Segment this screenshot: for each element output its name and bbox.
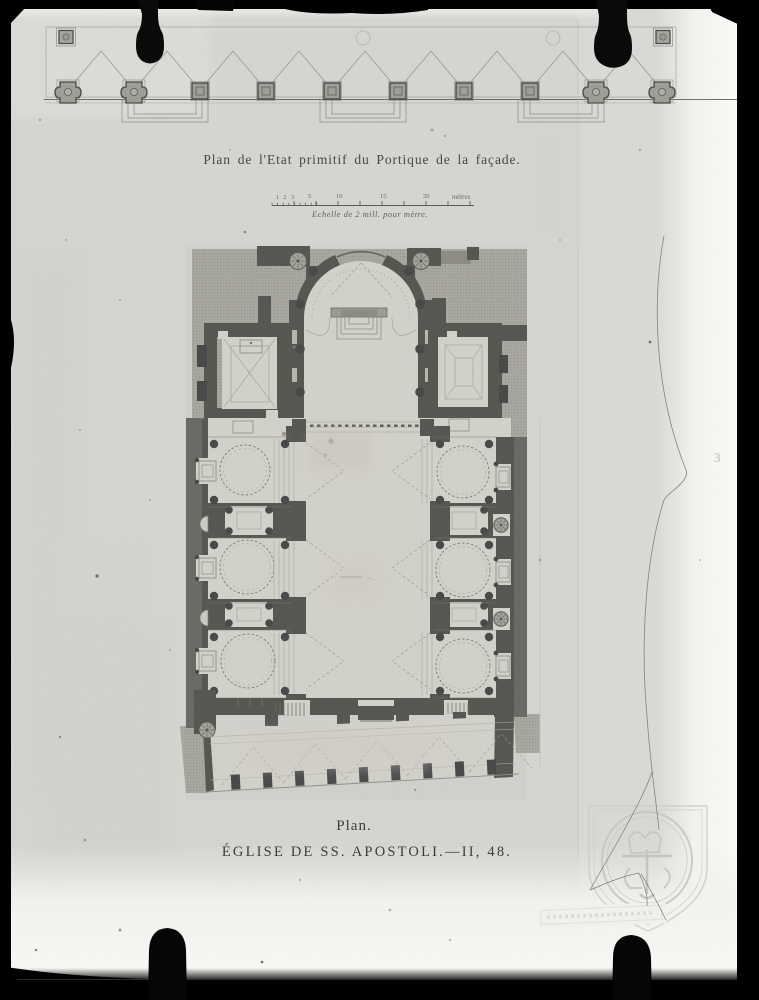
svg-text:10: 10	[336, 193, 343, 200]
svg-text:15: 15	[380, 193, 387, 200]
svg-text:Plan.: Plan.	[336, 818, 371, 834]
svg-text:ÉGLISE DE SS. APOSTOLI.—II, 48: ÉGLISE DE SS. APOSTOLI.—II, 48.	[222, 843, 512, 860]
svg-text:20: 20	[423, 193, 430, 200]
svg-text:mètres: mètres	[452, 193, 471, 201]
svg-text:5: 5	[308, 193, 311, 200]
svg-text:Echelle de 2 mill. pour mètre.: Echelle de 2 mill. pour mètre.	[311, 209, 428, 219]
svg-text:1 2 3: 1 2 3	[276, 195, 296, 201]
svg-text:Plan de l'Etat primitif du Por: Plan de l'Etat primitif du Portique de l…	[203, 152, 520, 167]
svg-text:3: 3	[714, 450, 721, 465]
